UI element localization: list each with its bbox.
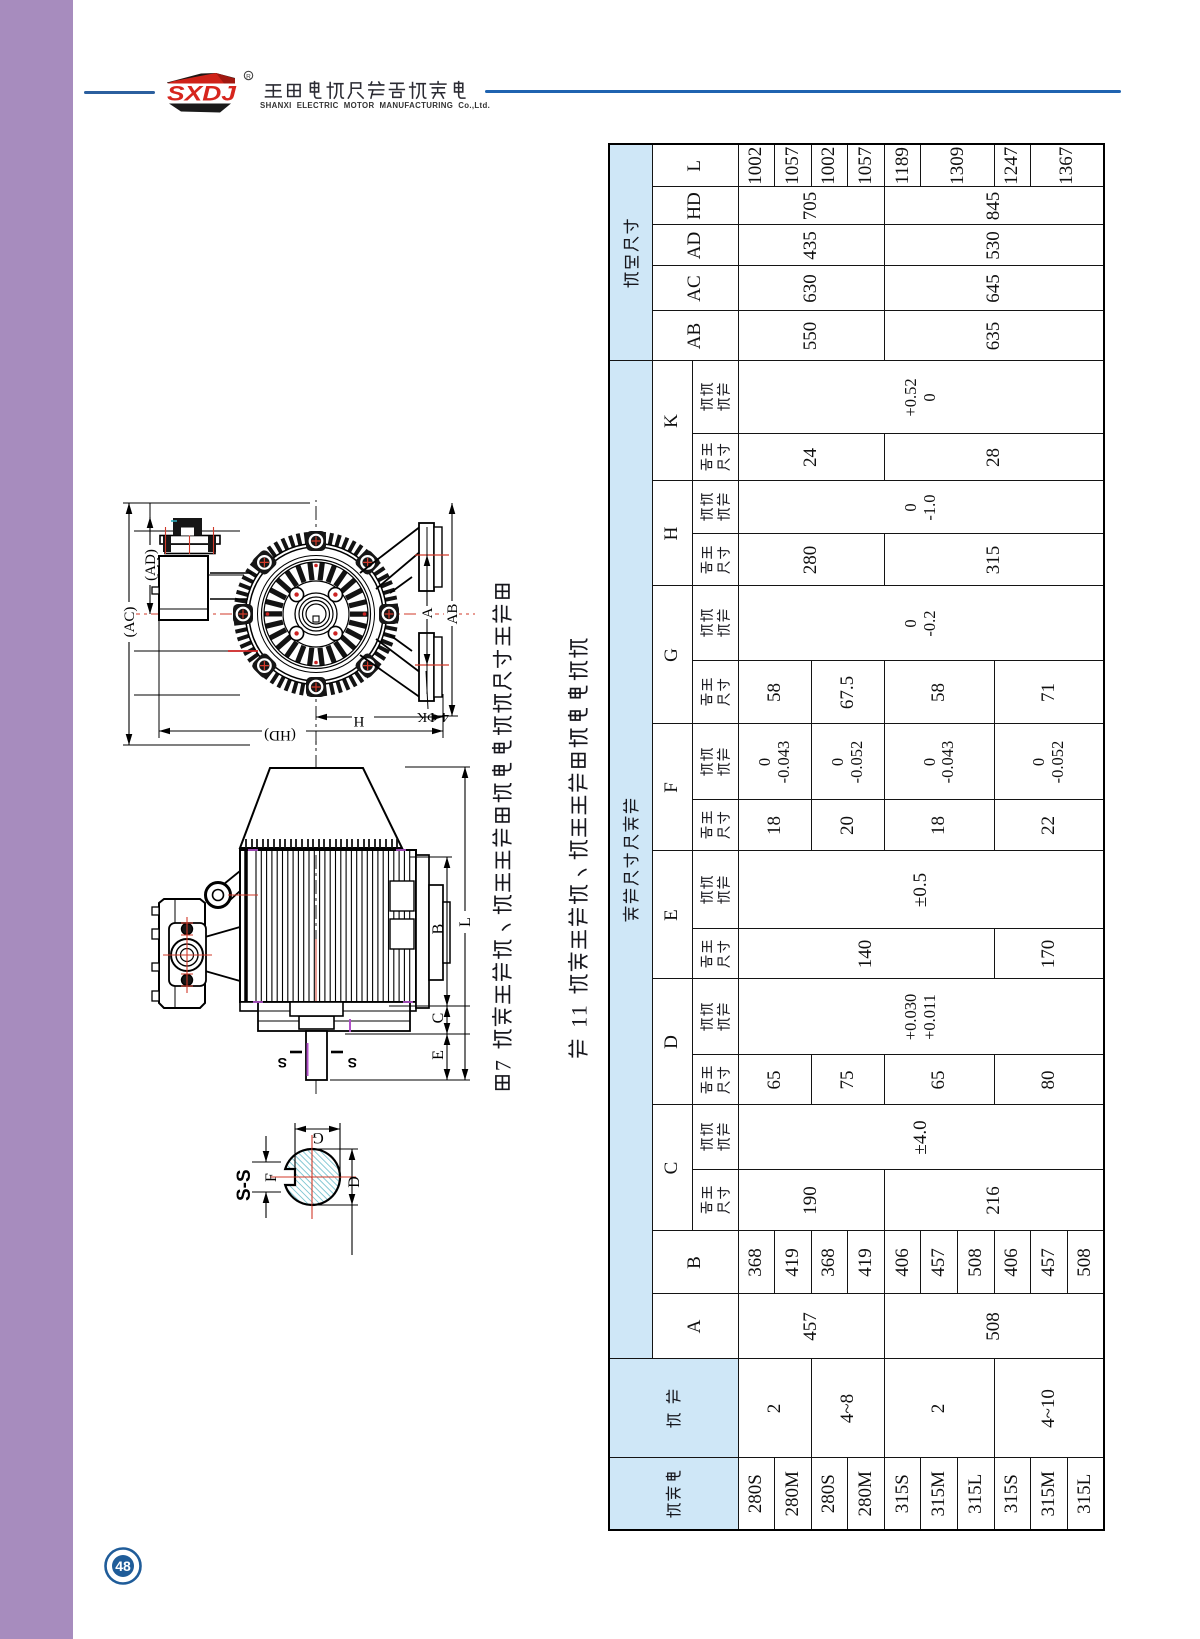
svg-text:S: S — [348, 1055, 357, 1071]
svg-text:F: F — [263, 1173, 280, 1182]
svg-text:1: 1 — [567, 1005, 589, 1016]
svg-text:A: A — [420, 607, 436, 618]
svg-text:48: 48 — [115, 1558, 131, 1574]
svg-text:4-ΦK: 4-ΦK — [417, 709, 449, 724]
svg-text:L: L — [457, 917, 474, 927]
svg-text:E: E — [430, 1050, 447, 1060]
svg-text:(AC): (AC) — [122, 607, 138, 638]
svg-text:H: H — [353, 713, 364, 729]
svg-text:S: S — [278, 1055, 287, 1071]
svg-text:B: B — [430, 924, 447, 935]
svg-text:G: G — [312, 1129, 324, 1146]
svg-text:7: 7 — [491, 1060, 513, 1071]
svg-text:S-S: S-S — [234, 1169, 255, 1201]
svg-text:(AD): (AD) — [143, 549, 159, 581]
svg-text:(HD): (HD) — [264, 727, 296, 743]
svg-text:D: D — [346, 1176, 363, 1188]
svg-text:1: 1 — [567, 1017, 589, 1028]
svg-text:AB: AB — [445, 604, 461, 625]
svg-text:C: C — [430, 1013, 447, 1024]
